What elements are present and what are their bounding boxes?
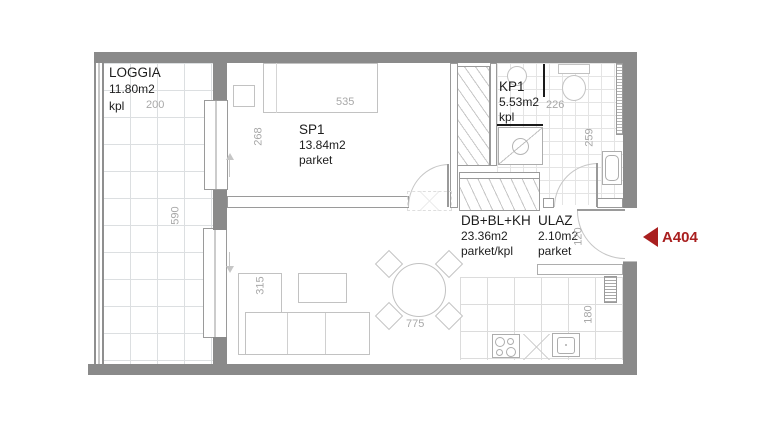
- room-floor: parket: [299, 153, 346, 169]
- room-label-sp1: SP1 13.84m2 parket: [299, 122, 346, 169]
- sink-drain-dot: [565, 344, 567, 346]
- bedroom-wall: [227, 196, 409, 208]
- exterior-wall-top: [94, 52, 637, 63]
- bed-headboard-line: [276, 63, 277, 113]
- shower-drain: [512, 138, 529, 155]
- bathroom-bottom-wall: [543, 198, 554, 208]
- bathroom-door-leaf: [596, 163, 598, 207]
- sofa-body: [245, 312, 370, 355]
- slider-direction-arrow-down: [229, 252, 230, 267]
- bedroom-right-wall: [450, 63, 458, 208]
- stove-burner: [496, 349, 503, 356]
- room-label-kp1: KP1 5.53m2 kpl: [499, 79, 539, 126]
- hall-wardrobe: [459, 178, 540, 211]
- bathroom-left-wall: [490, 63, 497, 166]
- exterior-wall-right-lower: [623, 262, 637, 375]
- fridge: [604, 276, 617, 303]
- exterior-wall-right-upper: [623, 52, 637, 208]
- dim-sp1-height: 268: [253, 122, 266, 152]
- room-name: KP1: [499, 79, 539, 95]
- room-area: 5.53m2: [499, 95, 539, 111]
- coffee-table: [298, 273, 347, 303]
- living-balcony-slider: [203, 228, 227, 338]
- dim-kitchen-depth: 180: [583, 300, 596, 330]
- room-area: 23.36m2: [461, 229, 531, 245]
- room-name: LOGGIA: [109, 64, 161, 81]
- unit-code: A404: [662, 229, 698, 246]
- room-name: DB+BL+KH: [461, 213, 531, 229]
- loggia-glass-wall: [94, 62, 104, 364]
- room-area: 11.80m2: [109, 81, 161, 98]
- toilet-bowl: [562, 75, 586, 101]
- dim-kp1-height: 259: [584, 123, 597, 153]
- dim-dining-width: 775: [406, 318, 424, 330]
- bathroom-sink-basin: [605, 155, 619, 181]
- loggia-divider-wall-top: [213, 52, 227, 100]
- stove-burner: [507, 338, 514, 345]
- dining-table: [392, 263, 446, 317]
- stove-burner: [506, 347, 516, 357]
- toilet-tank: [558, 64, 590, 74]
- dim-kp1-width: 226: [546, 99, 564, 111]
- bathroom-partition-line: [543, 64, 545, 97]
- room-label-db: DB+BL+KH 23.36m2 parket/kpl: [461, 213, 531, 260]
- room-area: 13.84m2: [299, 138, 346, 154]
- kitchen-counter-shelf: [537, 264, 623, 275]
- nightstand: [233, 85, 255, 107]
- sofa-cushion-line: [325, 313, 326, 354]
- exterior-wall-bottom: [88, 364, 637, 375]
- sofa-cushion-line: [287, 313, 288, 354]
- ventilation-duct: [616, 63, 623, 135]
- room-floor: kpl: [499, 110, 539, 126]
- dim-loggia-height: 590: [170, 201, 183, 231]
- dim-ulaz-width: 120: [573, 222, 586, 252]
- stove-burner: [495, 337, 505, 347]
- bedroom-door-dashed-leaf: [407, 191, 452, 211]
- floor-plan: LOGGIA 11.80m2 kpl SP1 13.84m2 parket KP…: [0, 0, 780, 424]
- slider-arrow-up-head: [226, 153, 234, 160]
- dim-sofa-depth: 315: [255, 271, 268, 301]
- loggia-divider-wall-mid: [213, 190, 227, 230]
- loggia-divider-wall-bottom: [213, 337, 227, 364]
- room-floor: parket/kpl: [461, 244, 531, 260]
- slider-arrow-down-head: [226, 266, 234, 273]
- wardrobe-tall: [456, 66, 490, 166]
- unit-arrow-icon: [643, 227, 658, 247]
- bedroom-balcony-window: [204, 100, 228, 190]
- slider-direction-arrow-up: [229, 159, 230, 177]
- dim-sp1-width: 535: [336, 96, 354, 108]
- dim-loggia-width: 200: [146, 99, 164, 111]
- corner-cabinet: [520, 334, 553, 360]
- bathroom-bottom-wall: [597, 198, 623, 208]
- room-name: SP1: [299, 122, 346, 138]
- entry-door-leaf: [577, 209, 625, 211]
- bed: [263, 63, 378, 113]
